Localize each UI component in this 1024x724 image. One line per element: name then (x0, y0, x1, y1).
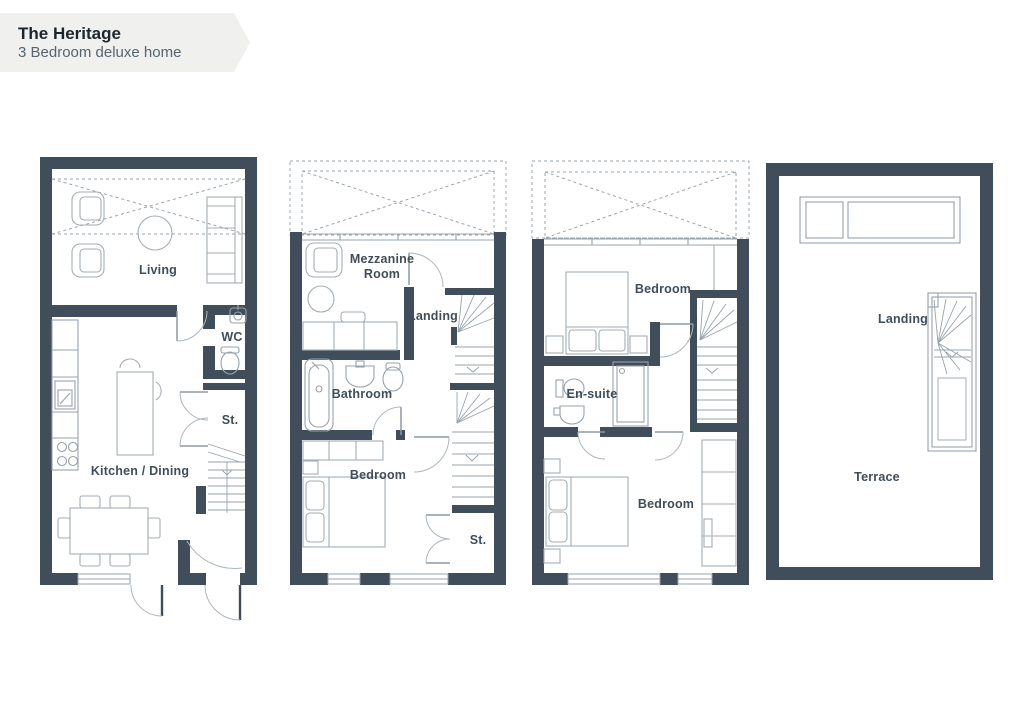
stairs-icon (697, 300, 737, 419)
room-label-mezzanine-line1: Mezzanine (350, 252, 414, 266)
stairs-icon (208, 444, 245, 513)
room-label-bedroom-back: Bedroom (638, 497, 694, 511)
wardrobe-icon (702, 440, 736, 566)
armchair-icon (306, 243, 342, 277)
kitchen-counter-icon (52, 320, 78, 470)
room-label-bathroom: Bathroom (332, 387, 393, 401)
bed-icon (546, 272, 647, 354)
room-label-store: St. (470, 533, 487, 547)
void-dashed-lines (290, 161, 506, 235)
floor-plan-2: Mezzanine Room Landing Bathroom Bedroom … (290, 161, 506, 585)
stairs-icon (928, 293, 976, 451)
bed-icon (544, 459, 628, 563)
room-label-terrace: Terrace (854, 470, 900, 484)
floor-plans-canvas: Living WC St. Kitchen / Dining (0, 0, 1024, 724)
void-dashed-lines (532, 161, 749, 238)
room-label-mezzanine-line2: Room (364, 267, 400, 281)
windows (78, 574, 130, 584)
room-label-ensuite: En-suite (567, 387, 618, 401)
wardrobe-icon (303, 441, 383, 460)
floor-plan-sheet: The Heritage 3 Bedroom deluxe home (0, 0, 1024, 724)
toilet-icon (221, 347, 239, 374)
round-table-icon (138, 216, 172, 250)
ensuite-sink-icon (554, 406, 584, 424)
room-label-wc: WC (221, 330, 242, 344)
room-label-landing: Landing (878, 312, 928, 326)
room-label-kitchen-dining: Kitchen / Dining (91, 464, 189, 478)
kitchen-island-icon (117, 359, 161, 455)
stairs-icon (452, 295, 494, 497)
room-label-bedroom: Bedroom (350, 468, 406, 482)
armchair-icon (72, 244, 104, 277)
windows (568, 574, 712, 584)
balustrade (544, 239, 737, 245)
shower-icon (613, 362, 648, 426)
room-label-bedroom-front: Bedroom (635, 282, 691, 296)
side-table-icon (308, 286, 334, 312)
floor-plan-4: Landing Terrace (766, 163, 993, 580)
desk-icon (303, 312, 397, 350)
sofa-icon (207, 197, 242, 283)
bath-icon (305, 359, 333, 431)
floor-plan-1: Living WC St. Kitchen / Dining (40, 157, 257, 620)
room-label-landing: Landing (408, 309, 458, 323)
room-label-living: Living (139, 263, 177, 277)
dining-table-icon (58, 496, 160, 566)
floor-plan-3: Bedroom En-suite Bedroom (532, 161, 749, 585)
room-label-store: St. (222, 413, 239, 427)
rooflight-icon (800, 197, 960, 243)
bathroom-sink-icon (346, 361, 374, 387)
